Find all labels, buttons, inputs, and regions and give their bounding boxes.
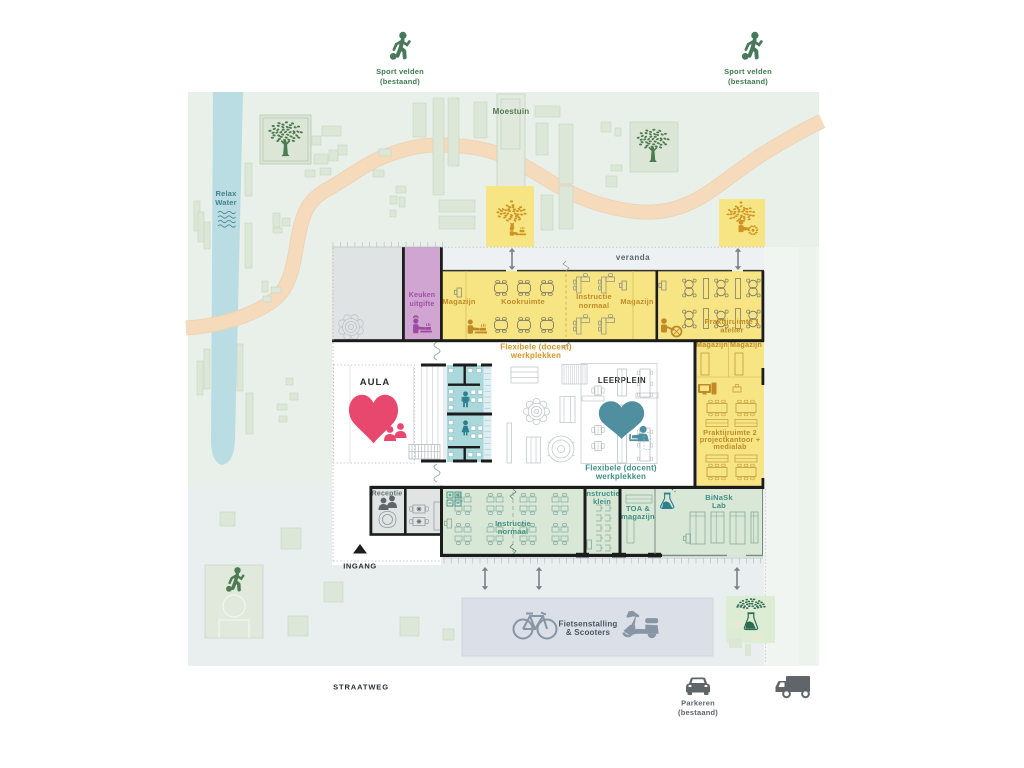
svg-text:atelier: atelier (720, 326, 744, 335)
svg-text:STRAATWEG: STRAATWEG (333, 683, 389, 692)
svg-text:(bestaand): (bestaand) (380, 77, 420, 86)
svg-text:normaal: normaal (498, 527, 529, 536)
svg-text:Magazijn: Magazijn (442, 297, 475, 306)
svg-text:Relax: Relax (215, 189, 237, 198)
svg-text:& Scooters: & Scooters (566, 628, 611, 637)
svg-text:Instructie: Instructie (576, 292, 612, 301)
svg-text:medialab: medialab (713, 442, 747, 451)
svg-text:werkplekken: werkplekken (595, 472, 646, 481)
svg-text:Keuken: Keuken (409, 292, 436, 299)
svg-text:Sport velden: Sport velden (724, 67, 772, 76)
svg-text:Magazijn: Magazijn (620, 297, 653, 306)
svg-text:magazijn: magazijn (621, 512, 655, 521)
svg-text:Lab: Lab (712, 501, 726, 510)
svg-text:Receptie: Receptie (372, 491, 403, 498)
svg-text:INGANG: INGANG (343, 562, 377, 571)
svg-text:veranda: veranda (616, 253, 650, 262)
svg-text:Moestuin: Moestuin (493, 107, 530, 116)
svg-text:(bestaand): (bestaand) (678, 708, 718, 717)
svg-text:Water: Water (215, 198, 237, 207)
svg-text:AULA: AULA (360, 377, 390, 388)
svg-text:normaal: normaal (579, 301, 610, 310)
svg-text:uitgifte: uitgifte (410, 301, 435, 308)
svg-text:Kookruimte: Kookruimte (501, 297, 545, 306)
svg-text:werkplekken: werkplekken (510, 351, 561, 360)
svg-text:Parkeren: Parkeren (681, 699, 715, 708)
svg-text:Sport velden: Sport velden (376, 67, 424, 76)
svg-text:(bestaand): (bestaand) (728, 77, 768, 86)
